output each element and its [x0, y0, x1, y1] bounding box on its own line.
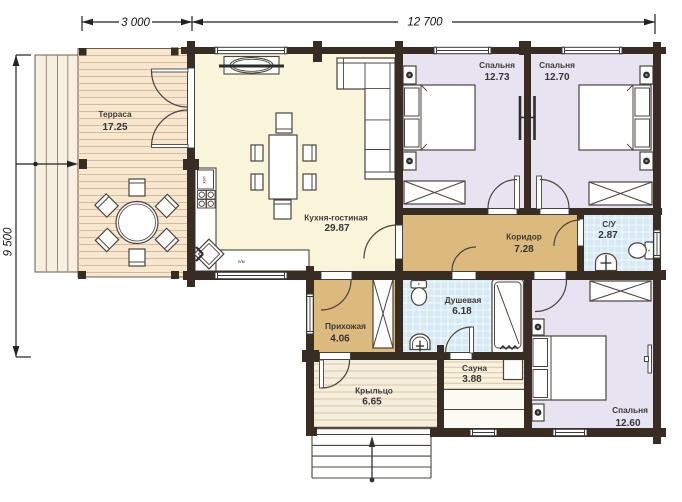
svg-text:17.25: 17.25 — [102, 122, 127, 133]
svg-text:Сауна: Сауна — [462, 363, 487, 373]
svg-text:9 500: 9 500 — [3, 227, 15, 256]
svg-text:С/У: С/У — [602, 219, 616, 229]
svg-text:Терраса: Терраса — [98, 109, 132, 119]
svg-text:29.87: 29.87 — [324, 223, 349, 234]
svg-text:6.65: 6.65 — [362, 397, 382, 408]
svg-text:12.60: 12.60 — [615, 418, 640, 429]
svg-text:12.73: 12.73 — [484, 72, 509, 83]
svg-text:3 000: 3 000 — [121, 17, 150, 29]
svg-text:4.06: 4.06 — [330, 334, 350, 345]
svg-text:12 700: 12 700 — [407, 17, 443, 29]
svg-text:2.87: 2.87 — [598, 230, 618, 241]
svg-text:3.88: 3.88 — [462, 374, 482, 385]
svg-text:12.70: 12.70 — [544, 72, 569, 83]
svg-text:хол: хол — [202, 176, 207, 184]
svg-text:Спальня: Спальня — [539, 60, 575, 70]
svg-text:п/м: п/м — [238, 259, 245, 264]
svg-text:Спальня: Спальня — [612, 405, 648, 415]
svg-text:Прихожая: Прихожая — [325, 321, 366, 331]
svg-text:6.18: 6.18 — [452, 306, 472, 317]
svg-text:Душевая: Душевая — [445, 295, 482, 305]
svg-text:7.28: 7.28 — [514, 244, 534, 255]
svg-text:Коридор: Коридор — [506, 232, 542, 242]
svg-text:Кухня-гостиная: Кухня-гостиная — [304, 213, 368, 223]
svg-text:Спальня: Спальня — [479, 60, 515, 70]
svg-text:Крыльцо: Крыльцо — [355, 386, 393, 396]
